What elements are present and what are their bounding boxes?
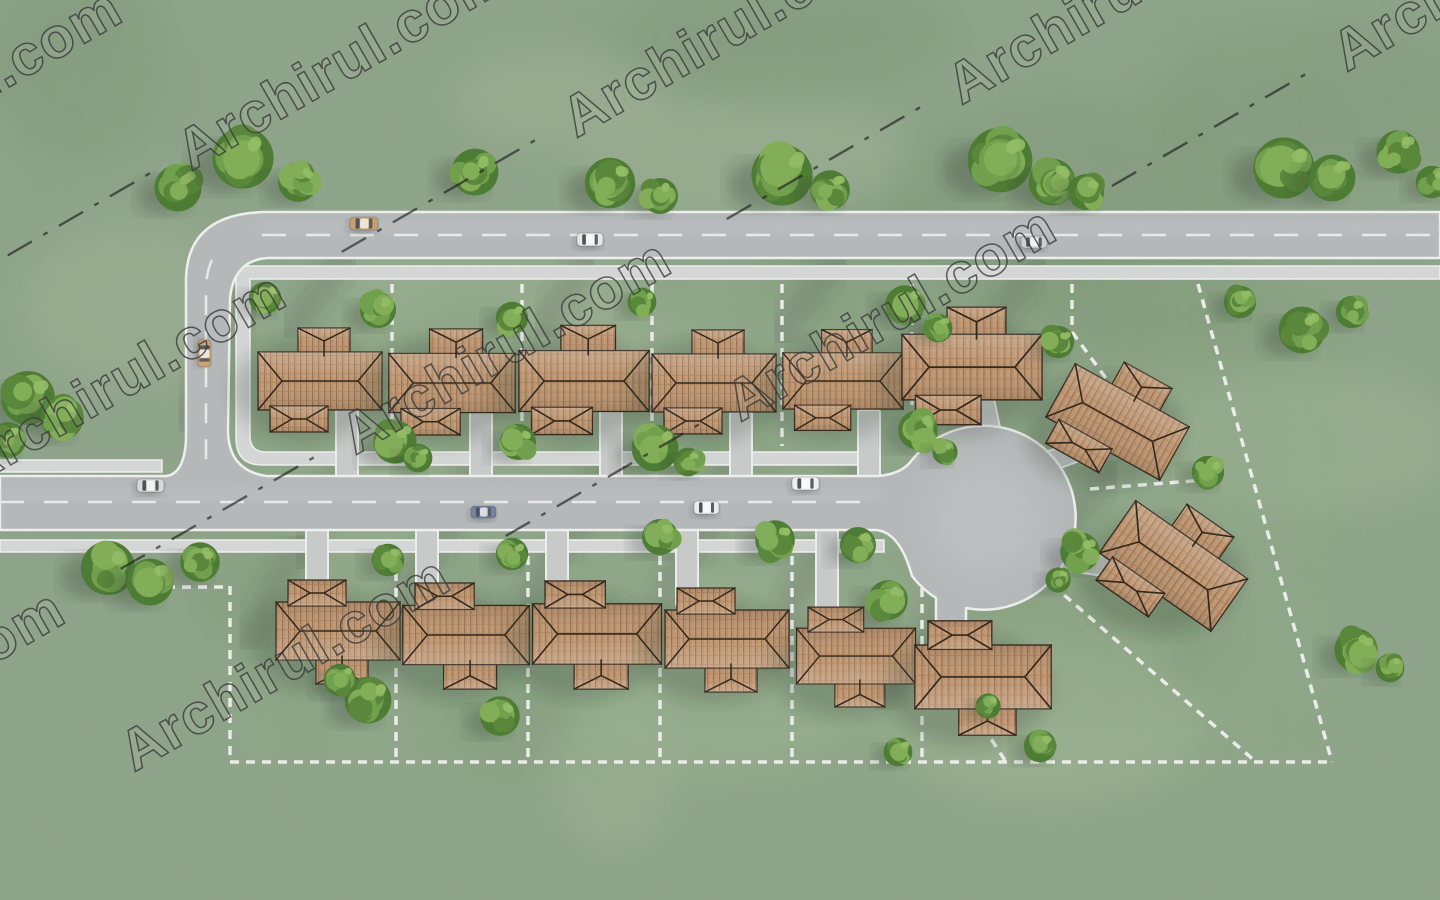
site-plan-svg: Archirul.comArchirul.comArchirul.comArch… (0, 0, 1440, 900)
site-plan-stage: Archirul.comArchirul.comArchirul.comArch… (0, 0, 1440, 900)
